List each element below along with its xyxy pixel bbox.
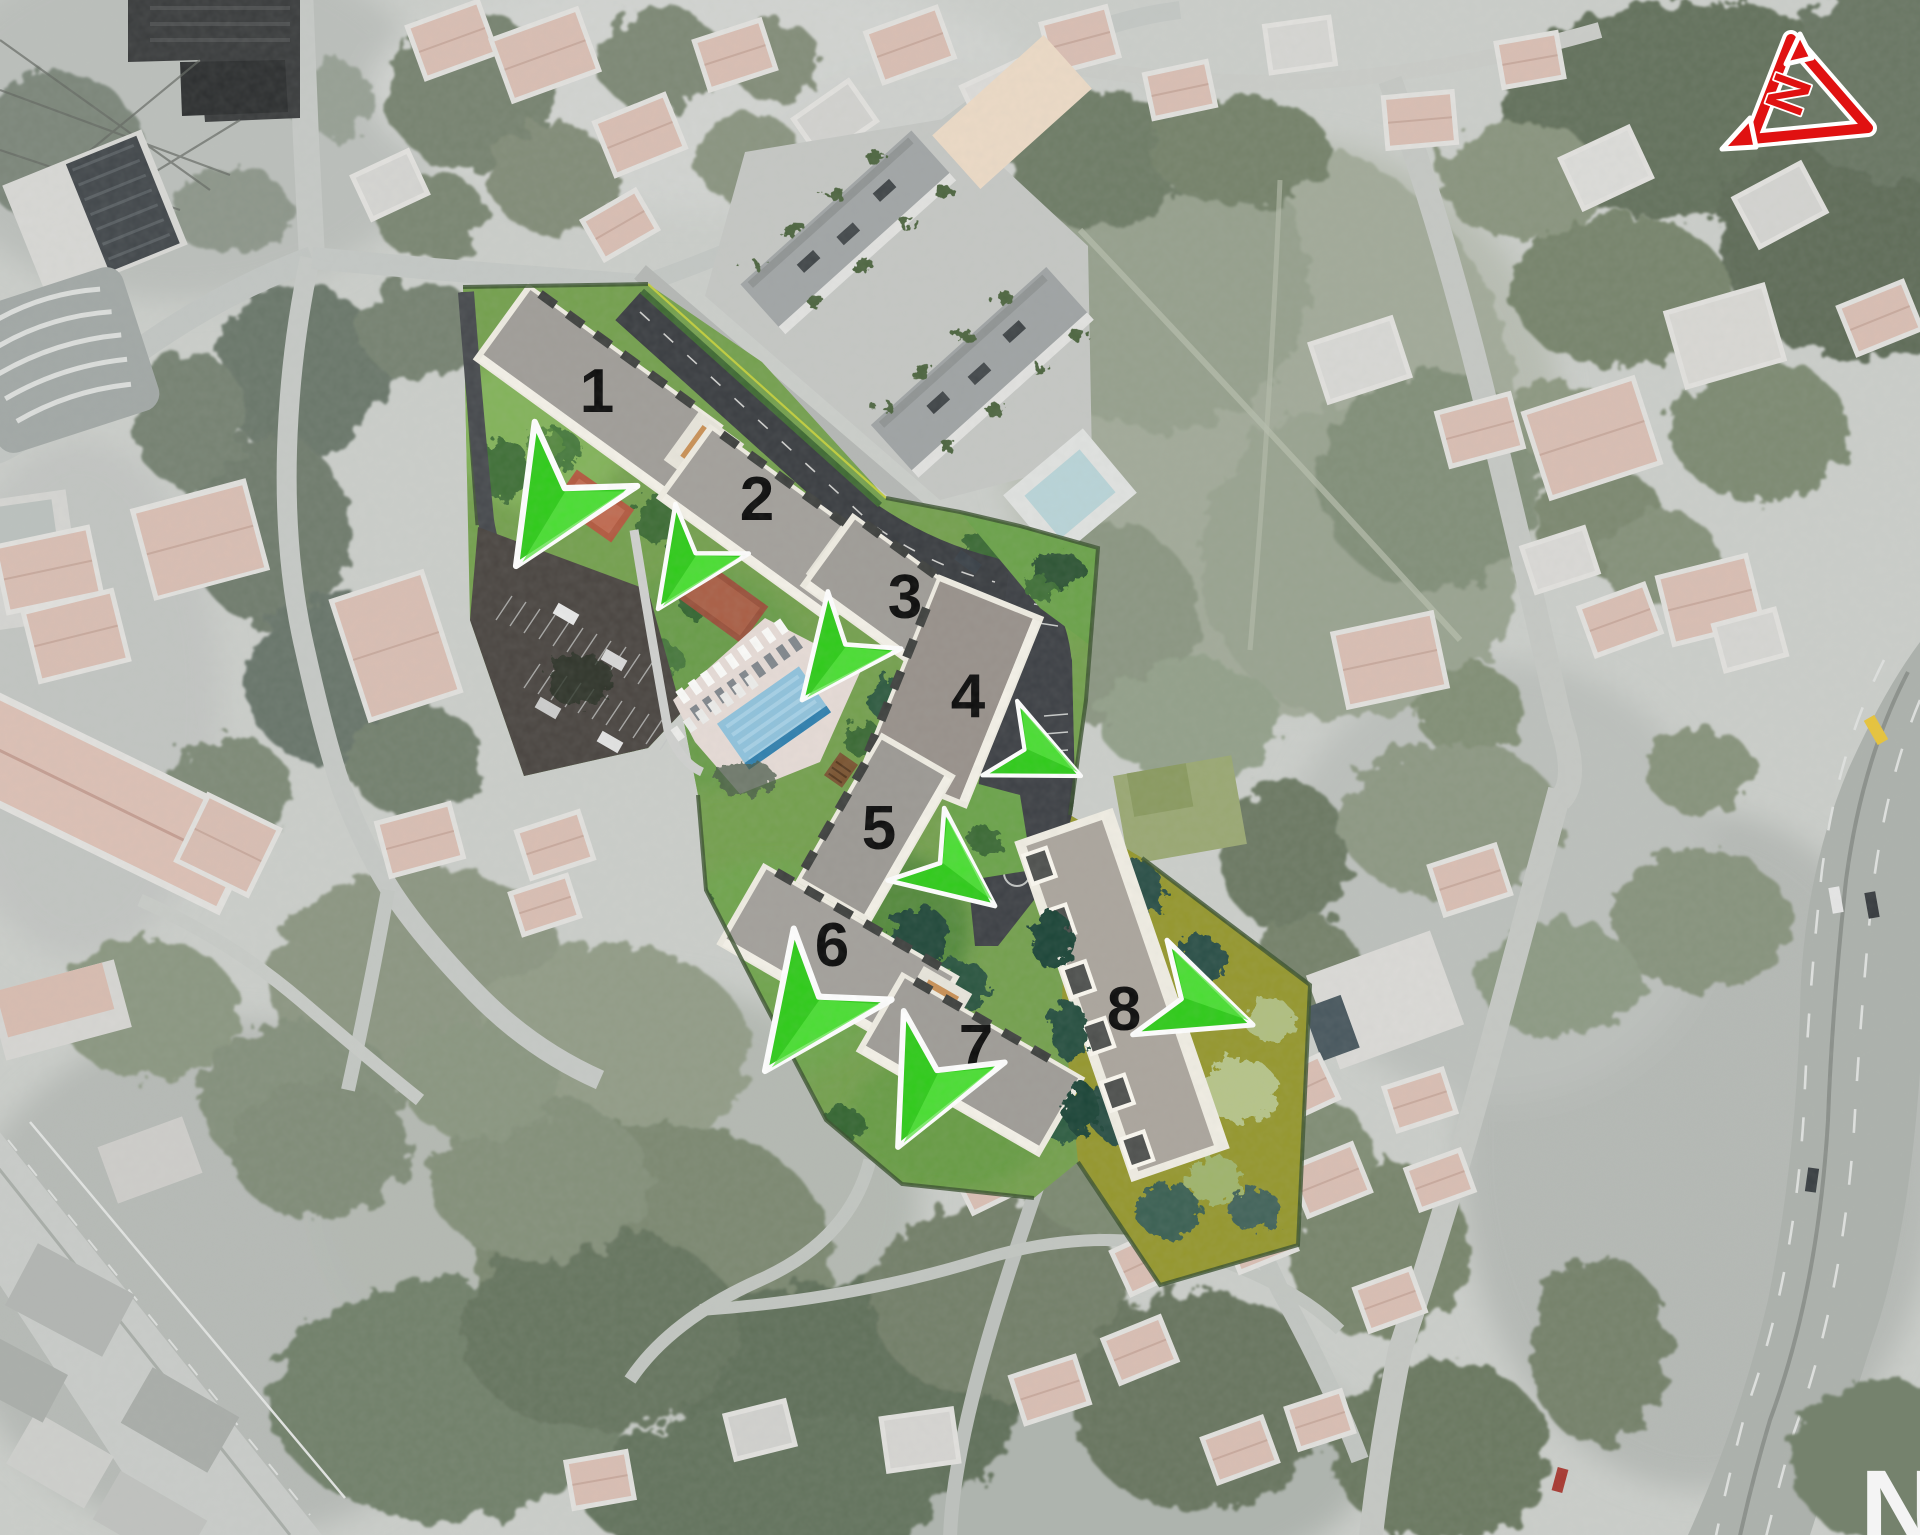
svg-text:N: N — [1860, 1447, 1920, 1535]
